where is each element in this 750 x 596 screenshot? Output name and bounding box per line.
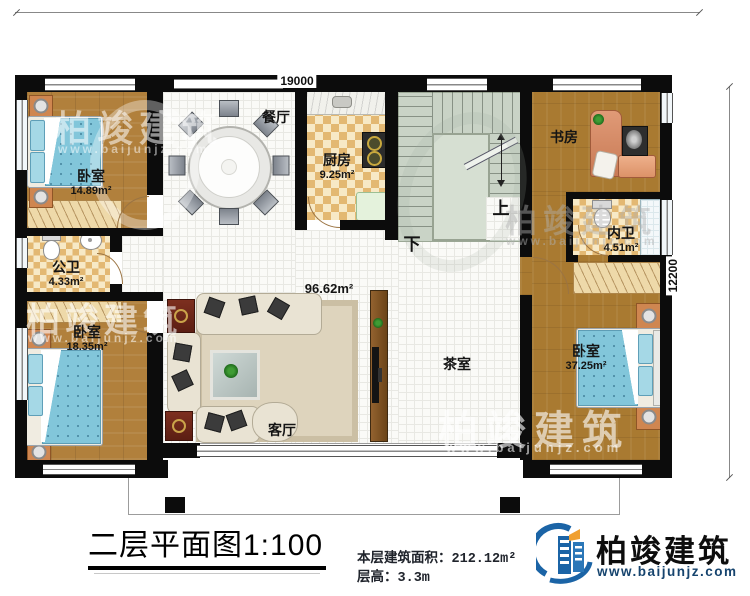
balcony-column — [165, 497, 185, 513]
wall-publicbath-right-a — [110, 236, 122, 252]
window-right-innerbath — [661, 200, 673, 255]
room-label-dining: 餐厅 — [262, 109, 290, 126]
desk-plant-icon — [593, 114, 604, 125]
door-kitchen — [308, 197, 340, 228]
sofa-cushion — [173, 343, 193, 363]
window-bottom-bedroom2 — [43, 464, 135, 475]
room-label-tea-room: 茶室 — [443, 356, 471, 373]
toilet-bowl — [43, 240, 60, 260]
watermark-url-text: www.baijunjz.com — [446, 440, 622, 455]
room-name: 内卫 — [604, 225, 639, 242]
nightstand — [29, 95, 53, 117]
watermark-url-text: www.baijunjz.com — [58, 142, 210, 156]
floor-height-line: 层高：3.3m — [357, 565, 430, 586]
wall-kitchen-right — [385, 92, 398, 240]
brand-logo — [536, 522, 596, 588]
table-plant-icon — [224, 364, 238, 378]
room-label-kitchen: 厨房 9.25m² — [320, 152, 355, 181]
door-public-bath — [97, 253, 123, 284]
stairs-down-label: 下 — [404, 235, 421, 255]
wall-living-bottom-left — [163, 443, 200, 458]
room-label-bedroom-right: 卧室 37.25m² — [566, 343, 607, 372]
dimension-line-top — [15, 12, 700, 13]
dimension-width-label: 19000 — [277, 74, 316, 88]
monitor-screen-icon — [626, 130, 642, 149]
stove-burner-icon — [367, 151, 382, 166]
sofa-cushion — [238, 295, 258, 315]
plan-title: 二层平面图1:100 — [88, 520, 323, 564]
room-label-public-bath: 公卫 4.33m² — [49, 259, 84, 288]
room-name: 卧室 — [71, 168, 112, 185]
lamp-icon — [34, 190, 49, 205]
bedroom-right-door-threshold — [520, 257, 532, 295]
dimension-line-right — [729, 86, 730, 478]
nightstand — [636, 303, 662, 329]
cabinet-knob-icon — [172, 419, 186, 433]
room-name: 卧室 — [566, 343, 607, 360]
room-name: 客厅 — [268, 422, 296, 439]
floor-height-label: 层高： — [357, 569, 398, 584]
room-area: 96.62m² — [305, 281, 353, 296]
floor-height-value: 3.3m — [398, 571, 430, 586]
wall-bedroom2-right — [147, 333, 163, 460]
window-left-publicbath — [16, 238, 28, 268]
kitchen-appliance — [356, 192, 387, 221]
room-area: 4.33m² — [49, 276, 84, 289]
room-label-living: 客厅 — [268, 422, 296, 439]
window-right-study — [661, 93, 673, 123]
bed-sheet — [41, 350, 61, 442]
room-name: 餐厅 — [262, 109, 290, 126]
bed-pillow — [28, 386, 43, 416]
room-area: 37.25m² — [566, 360, 607, 373]
wall-innerbath-bottom-a — [566, 255, 578, 262]
sink-drain-icon — [88, 238, 92, 242]
tv-stand — [378, 368, 382, 382]
bed-pillow — [30, 152, 45, 183]
dining-chair — [219, 208, 239, 225]
room-label-inner-bath: 内卫 4.51m² — [604, 225, 639, 254]
wall-innerbath-bottom-b — [608, 255, 672, 262]
window-top-study — [553, 78, 641, 91]
window-bottom-bedroom3 — [550, 464, 642, 475]
lamp-icon — [34, 99, 49, 114]
brand-logo-icon — [536, 522, 596, 588]
floor-area-value: 212.12m² — [452, 552, 517, 567]
room-area: 9.25m² — [320, 169, 355, 182]
stairs-up-label: 上 — [493, 199, 510, 219]
kitchen-sink-faucet-icon — [332, 96, 352, 108]
bed-sheet — [622, 330, 638, 404]
bed-pillow — [638, 334, 653, 364]
room-label-study: 书房 — [550, 129, 578, 146]
brand-website: www.baijunjz.com — [597, 564, 738, 579]
room-name: 茶室 — [443, 356, 471, 373]
side-cabinet — [165, 411, 193, 441]
room-area: 4.51m² — [604, 242, 639, 255]
dining-chair — [273, 156, 290, 176]
title-underline-thick — [88, 566, 326, 570]
room-area: 14.89m² — [71, 185, 112, 198]
window-top-stairs — [427, 78, 487, 91]
window-top-dining — [174, 79, 283, 89]
bed-pillow — [30, 120, 45, 151]
room-area: 18.35m² — [67, 341, 108, 354]
dining-table-center — [221, 159, 237, 175]
floor-plan-page: 柏竣建筑 www.baijunjz.com 柏竣建筑 www.baijunjz.… — [0, 0, 750, 596]
room-name: 公卫 — [49, 259, 84, 276]
room-label-bedroom-top-left: 卧室 14.89m² — [71, 168, 112, 197]
wall-kitchen-bottom — [340, 220, 398, 230]
nightstand — [29, 186, 53, 208]
stove-burner-icon — [367, 136, 382, 151]
wall-kitchen-left — [295, 92, 307, 230]
room-name: 书房 — [550, 129, 578, 146]
bed-pillow — [638, 366, 653, 396]
hall-floor-nook — [122, 236, 163, 293]
lamp-icon — [642, 410, 657, 425]
study-desk-return — [618, 155, 656, 178]
dimension-tick — [726, 474, 733, 481]
window-top-bedroom1 — [45, 78, 135, 91]
room-name: 卧室 — [67, 324, 108, 341]
room-name: 厨房 — [320, 152, 355, 169]
bed-pillow — [28, 354, 43, 384]
partition-plant-icon — [373, 318, 383, 328]
dimension-tick — [696, 9, 703, 16]
bedroom-right-wardrobe — [573, 262, 662, 294]
window-left-bedroom1 — [16, 100, 28, 170]
room-label-bedroom-bottom-left: 卧室 18.35m² — [67, 324, 108, 353]
lamp-icon — [32, 445, 47, 460]
balcony-column — [500, 497, 520, 513]
dimension-height-label: 12200 — [666, 256, 680, 295]
title-underline-thin — [94, 573, 320, 574]
lamp-icon — [642, 309, 657, 324]
living-area-value: 96.62m² — [305, 281, 353, 296]
floor-area-label: 本层建筑面积： — [357, 550, 452, 565]
floor-area-line: 本层建筑面积：212.12m² — [357, 546, 516, 567]
